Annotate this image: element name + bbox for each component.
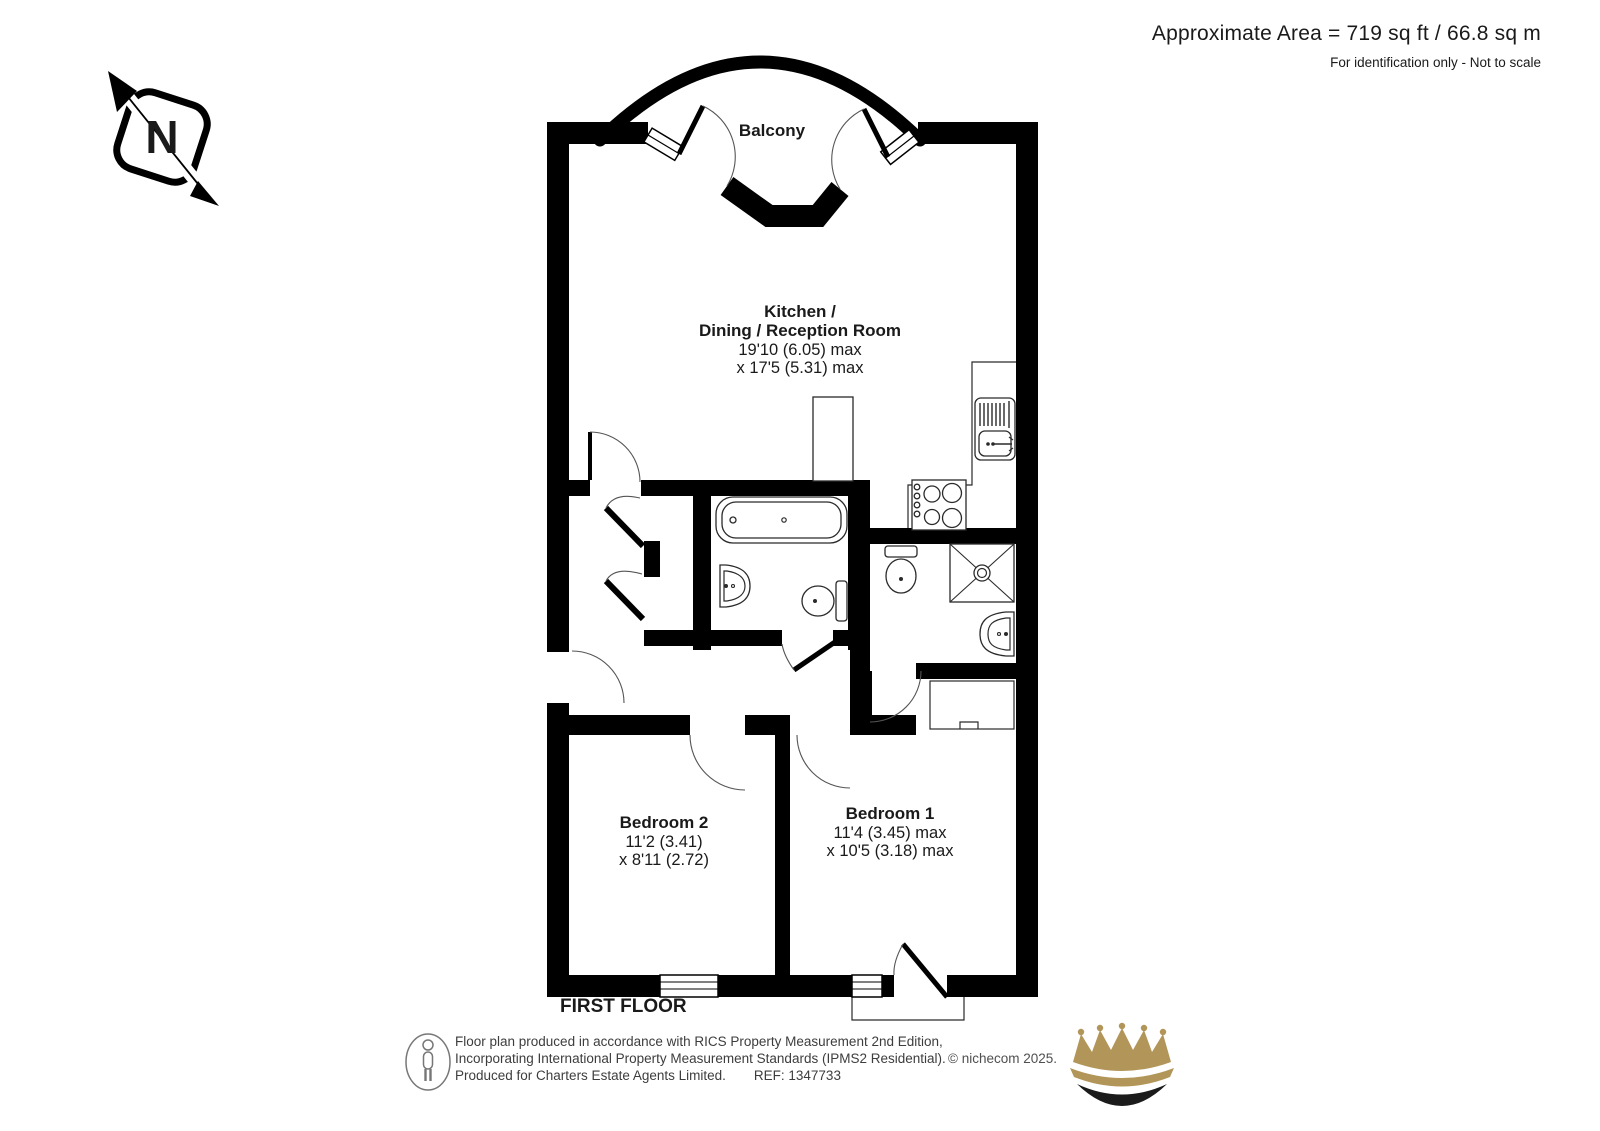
bedroom2-dims-line1: 11'2 (3.41) bbox=[625, 833, 702, 851]
bathroom-basin bbox=[720, 565, 750, 607]
shower bbox=[950, 544, 1014, 602]
kitchen-label-line1: Kitchen / bbox=[764, 302, 836, 321]
bedroom1-external-door bbox=[903, 944, 947, 997]
bathroom-toilet bbox=[802, 581, 847, 621]
bedroom2-door-arc bbox=[690, 735, 745, 790]
built-in-wardrobe bbox=[930, 681, 1014, 729]
footer-line3: Produced for Charters Estate Agents Limi… bbox=[455, 1067, 946, 1084]
kitchen-sink bbox=[975, 398, 1015, 460]
external-step-outline bbox=[852, 997, 964, 1020]
bedroom1-window bbox=[852, 975, 882, 997]
ensuite-toilet bbox=[885, 546, 917, 593]
kitchen-island-unit bbox=[813, 397, 853, 481]
bedroom2-window bbox=[660, 975, 718, 997]
kitchen-dims-line2: x 17'5 (5.31) max bbox=[737, 359, 865, 377]
bedroom1-dims-line1: 11'4 (3.45) max bbox=[834, 824, 948, 842]
floor-label: FIRST FLOOR bbox=[560, 996, 687, 1017]
ensuite-fixtures bbox=[885, 544, 1014, 729]
north-compass-icon: N bbox=[108, 71, 219, 206]
footer-ref: REF: 1347733 bbox=[754, 1068, 841, 1083]
kitchen-dims-line1: 19'10 (6.05) max bbox=[738, 341, 862, 359]
kitchen-hob bbox=[912, 480, 966, 530]
bathroom-fixtures bbox=[716, 497, 847, 621]
cupboard-door-2 bbox=[606, 581, 643, 619]
kitchen-label-line2: Dining / Reception Room bbox=[699, 321, 901, 340]
balcony-door-left bbox=[679, 106, 703, 154]
footer: Floor plan produced in accordance with R… bbox=[455, 1033, 946, 1084]
bedroom2-label: Bedroom 2 bbox=[620, 813, 709, 832]
bathtub bbox=[716, 497, 847, 543]
bathroom-door bbox=[794, 642, 835, 670]
balcony-bay-wall bbox=[727, 186, 840, 216]
person-scale-icon bbox=[406, 1034, 450, 1090]
bedroom1-door-arc bbox=[797, 735, 850, 788]
floor-plan-drawing: N bbox=[0, 0, 1600, 1131]
footer-line2: Incorporating International Property Mea… bbox=[455, 1050, 946, 1067]
entrance-door-arc bbox=[572, 651, 624, 703]
bedroom2-dims-line2: x 8'11 (2.72) bbox=[619, 851, 709, 869]
bedroom1-dims-line2: x 10'5 (3.18) max bbox=[827, 842, 955, 860]
balcony-window-right bbox=[881, 130, 919, 165]
cupboard-door-1 bbox=[606, 508, 643, 546]
footer-line1: Floor plan produced in accordance with R… bbox=[455, 1033, 946, 1050]
ensuite-basin bbox=[980, 612, 1014, 656]
balcony-window-left bbox=[644, 128, 683, 160]
crown-logo-icon bbox=[1070, 1023, 1174, 1106]
compass-north-letter: N bbox=[145, 111, 178, 163]
footer-produced-for: Produced for Charters Estate Agents Limi… bbox=[455, 1068, 726, 1083]
bedroom1-label: Bedroom 1 bbox=[846, 804, 935, 823]
floorplan-page: Approximate Area = 719 sq ft / 66.8 sq m… bbox=[0, 0, 1600, 1131]
copyright-text: © nichecom 2025. bbox=[948, 1051, 1057, 1066]
balcony-label: Balcony bbox=[739, 121, 806, 140]
